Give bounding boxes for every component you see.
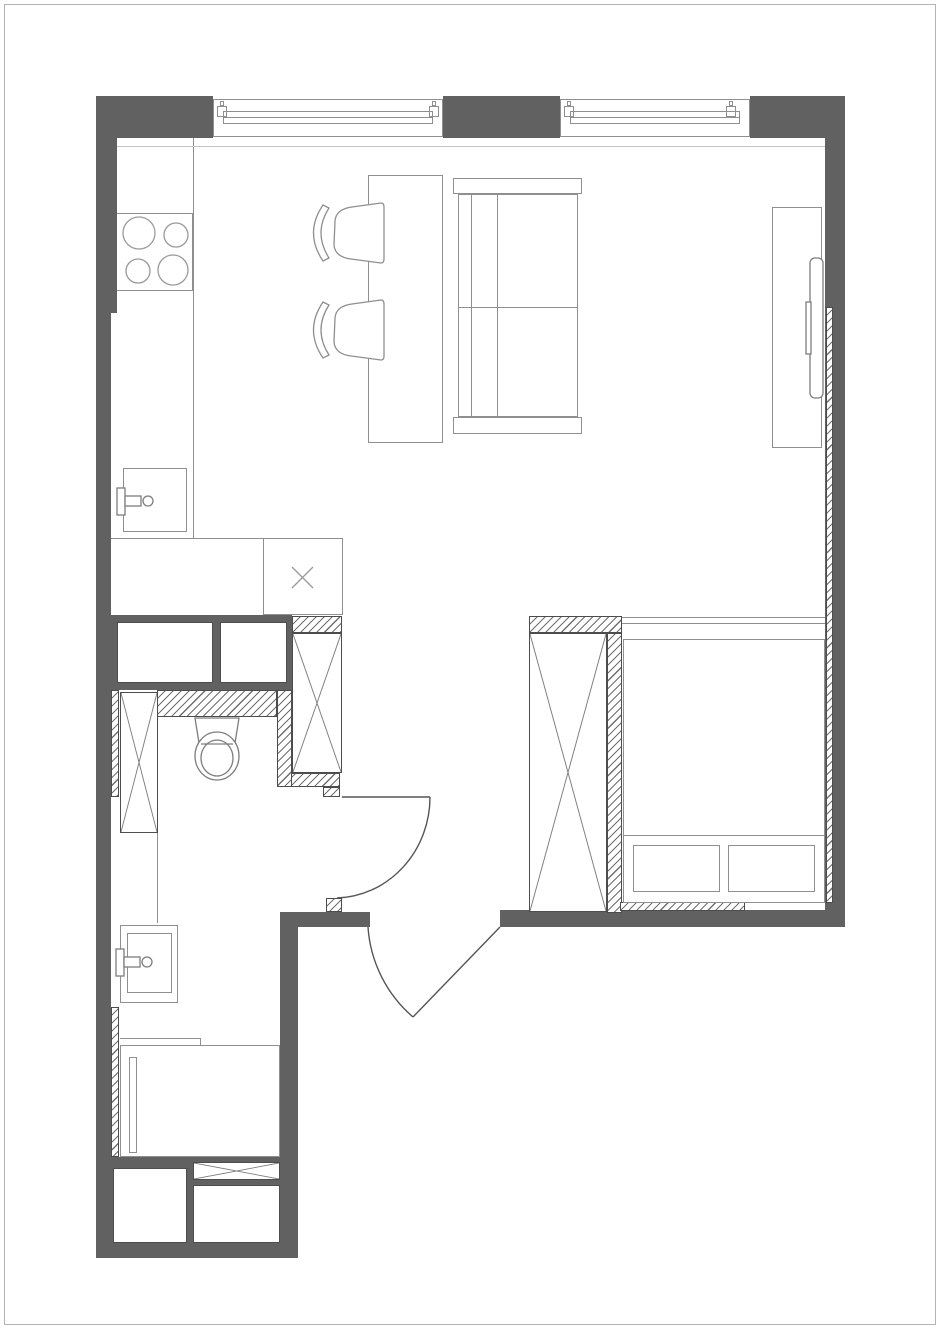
entry-door-swing-arc <box>368 927 413 1017</box>
bathroom-door-swing-arc <box>337 797 430 898</box>
chair-back <box>314 205 330 261</box>
bathroom-door <box>337 797 430 898</box>
stove-burners <box>123 217 188 285</box>
bathroom-faucet-icon <box>116 949 152 976</box>
appliance-x-mark <box>292 567 313 588</box>
tv <box>806 258 823 398</box>
chair-back <box>314 302 330 358</box>
floor-plan <box>0 0 940 1329</box>
toilet <box>195 718 239 780</box>
chair-seat <box>334 203 384 263</box>
kitchen-faucet-icon <box>117 488 153 515</box>
furniture-overlay <box>0 0 940 1329</box>
entry-door <box>368 927 500 1017</box>
dining-chair-2 <box>314 300 385 360</box>
toilet-bowl-inner <box>201 740 233 776</box>
entry-door-leaf <box>413 927 500 1017</box>
dining-chair-1 <box>314 203 385 263</box>
chair-seat <box>334 300 384 360</box>
